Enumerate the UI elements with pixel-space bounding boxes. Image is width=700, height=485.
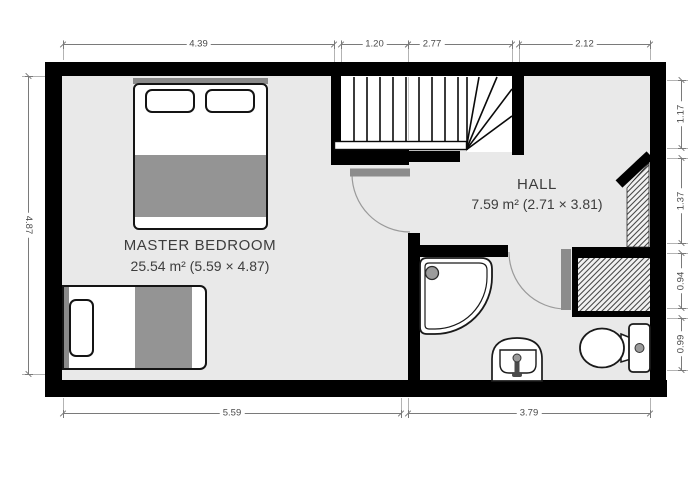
stairwell-winder-area <box>467 76 512 152</box>
dim-label: 1.17 <box>676 102 686 127</box>
dimension-top-2: 1.20 <box>341 44 408 45</box>
wall-bathroom-north <box>408 245 508 257</box>
dimension-top-4: 2.12 <box>519 44 650 45</box>
dim-label: 1.20 <box>362 39 387 49</box>
dim-label: 0.99 <box>676 332 686 357</box>
dimension-bottom-1: 5.59 <box>63 413 401 414</box>
dim-label: 1.37 <box>676 188 686 213</box>
floor-plan-canvas: MASTER BEDROOM 25.54 m² (5.59 × 4.87) HA… <box>0 0 700 485</box>
dimension-right-4: 0.99 <box>681 318 682 370</box>
wall-under-stair-step <box>408 151 460 162</box>
wall-under-stair <box>331 149 409 165</box>
wall-stair-right <box>512 76 524 155</box>
double-bed-pillow-right <box>205 89 255 113</box>
hall-label: HALL <box>437 176 637 193</box>
wall-chimney-left <box>572 247 579 317</box>
stairwell-treads-area <box>341 76 467 141</box>
double-bed-blanket <box>135 155 266 217</box>
dimension-right-3: 0.94 <box>681 253 682 308</box>
single-bed <box>62 285 207 370</box>
wall-left <box>45 62 62 397</box>
wall-chimney-bottom <box>572 311 666 317</box>
master-bedroom-label: MASTER BEDROOM <box>100 237 300 254</box>
ext-line <box>408 77 409 141</box>
wall-right <box>650 62 666 397</box>
dimension-top-3: 2.77 <box>408 44 512 45</box>
wall-chimney-top <box>572 247 666 258</box>
double-bed <box>133 83 268 230</box>
dim-label: 4.39 <box>186 39 211 49</box>
single-bed-blanket <box>135 287 192 368</box>
dimension-right-1: 1.17 <box>681 80 682 148</box>
dimension-right-2: 1.37 <box>681 158 682 243</box>
dim-label: 4.87 <box>23 213 33 238</box>
dim-label: 5.59 <box>220 408 245 418</box>
wall-stair-left <box>331 76 341 152</box>
dim-label: 3.79 <box>517 408 542 418</box>
dim-label: 2.12 <box>572 39 597 49</box>
hall-area: 7.59 m² (2.71 × 3.81) <box>437 196 637 212</box>
dimension-bottom-2: 3.79 <box>408 413 650 414</box>
dimension-left-1: 4.87 <box>28 76 29 374</box>
double-bed-pillow-left <box>145 89 195 113</box>
wall-top <box>45 62 666 76</box>
single-bed-pillow <box>69 299 94 357</box>
dim-label: 2.77 <box>420 39 445 49</box>
master-bedroom-area: 25.54 m² (5.59 × 4.87) <box>100 258 300 274</box>
dimension-top-1: 4.39 <box>63 44 334 45</box>
wall-bottom <box>45 380 667 397</box>
dim-label: 0.94 <box>676 268 686 293</box>
